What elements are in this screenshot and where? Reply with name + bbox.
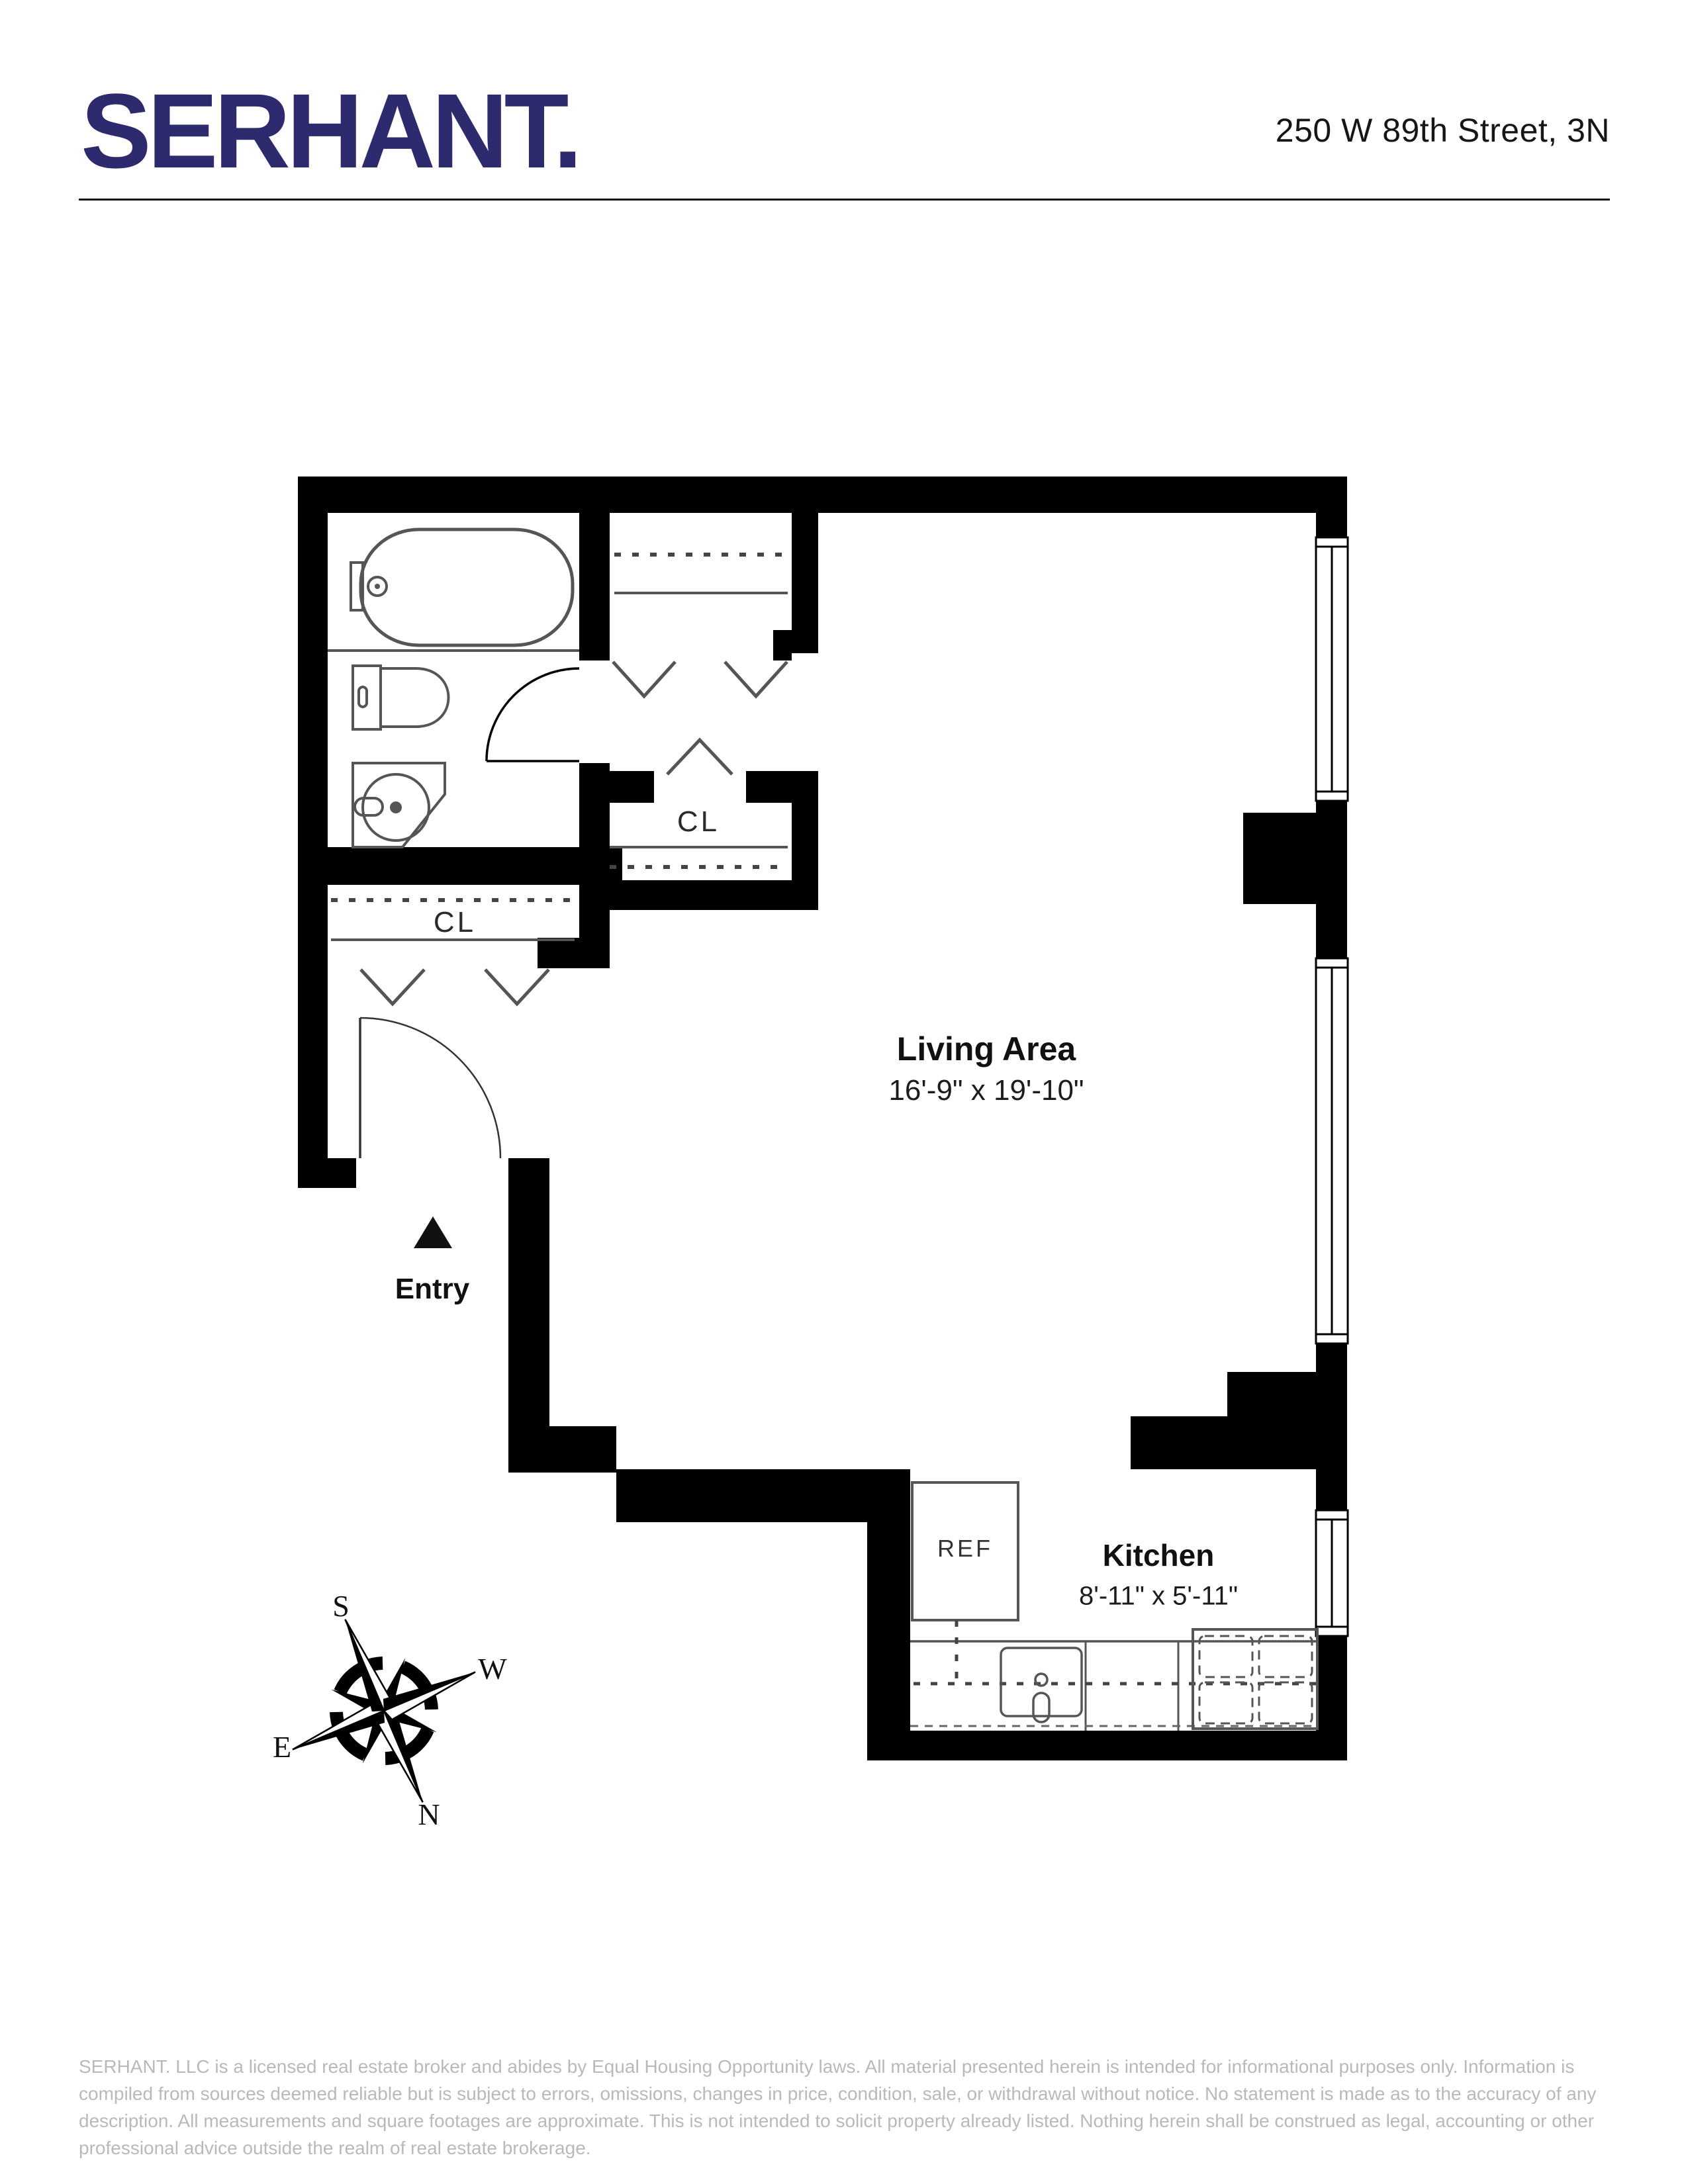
compass-rose: S W E N (265, 1582, 516, 1840)
kitchen-sink-faucet (1033, 1693, 1049, 1722)
toilet (353, 666, 449, 729)
wall-bath-bottom (326, 847, 622, 885)
wall-top (298, 477, 1347, 513)
compass-south-label: S (332, 1589, 350, 1623)
wall-hall-closet-stub-right (746, 771, 792, 803)
wall-hall-closet-stub-left (604, 771, 654, 803)
wall-step (508, 1426, 616, 1473)
living-area-dimensions: 16'-9" x 19'-10" (888, 1074, 1084, 1107)
entry-label: Entry (395, 1273, 469, 1306)
legal-disclaimer: SERHANT. LLC is a licensed real estate b… (79, 2054, 1615, 2162)
bathroom-group (328, 529, 579, 847)
refrigerator-label: REF (937, 1535, 993, 1563)
compass-west-label: W (478, 1652, 507, 1686)
header-divider (79, 199, 1610, 201)
wall-right-top (1316, 477, 1347, 537)
serhant-logo: SERHANT. (81, 78, 579, 184)
wall-kitchen-step-upper (1227, 1372, 1320, 1416)
closet-chevron-icon (485, 970, 549, 1004)
bathroom-sink (353, 763, 445, 847)
bathtub (361, 529, 573, 645)
kitchen-title: Kitchen (1103, 1537, 1215, 1573)
stove-burner (1259, 1682, 1312, 1723)
wall-right-pier (1316, 801, 1347, 958)
entry-door-swing (360, 1018, 500, 1158)
wall-foyer-right (508, 1158, 549, 1426)
wall-right-mid (1316, 1343, 1347, 1510)
bathroom-door (487, 668, 579, 761)
property-address: 250 W 89th Street, 3N (1276, 111, 1610, 150)
entry-arrow-icon (414, 1216, 452, 1248)
bathtub-drain (375, 584, 380, 589)
wall-entry-left-stub (326, 1158, 356, 1188)
closet-chevron-icon (667, 740, 732, 774)
wall-hall-right-upper (792, 480, 818, 653)
stove-burner (1199, 1682, 1252, 1723)
stove (1193, 1629, 1317, 1729)
wall-living-bottom (616, 1469, 910, 1522)
compass-north-label: N (418, 1797, 440, 1831)
wall-kitchen-left (867, 1521, 910, 1733)
wall-foyer-closet-stub (538, 938, 579, 968)
closets-group (331, 555, 788, 1004)
window-kitchen (1316, 1510, 1348, 1636)
kitchen-sink-drain (1035, 1674, 1047, 1686)
toilet-bowl (381, 668, 449, 727)
toilet-button (359, 687, 367, 707)
compass-major-points (265, 1582, 514, 1840)
window-living-lower (1316, 958, 1348, 1343)
closet-chevron-icon (613, 662, 675, 696)
wall-pier-bump (1243, 813, 1317, 904)
window-living-upper (1316, 537, 1348, 801)
wall-left (298, 477, 328, 1188)
foyer-closet-label: CL (434, 906, 476, 939)
hall-closet-label: CL (677, 805, 720, 839)
kitchen-dimensions: 8'-11" x 5'-11" (1079, 1582, 1238, 1612)
closet-chevron-icon (361, 970, 424, 1004)
wall-kitchen-top (1131, 1416, 1320, 1469)
sink-faucet (355, 798, 383, 815)
stove-outline (1193, 1629, 1317, 1729)
wall-bath-right-upper (579, 513, 610, 660)
wall-right-bottom (1316, 1636, 1347, 1760)
sink-drain (390, 801, 402, 813)
compass-star (265, 1582, 514, 1840)
closet-chevron-icon (725, 662, 787, 696)
living-area-title: Living Area (897, 1030, 1076, 1068)
wall-top-closet-stub (773, 630, 792, 660)
entry-door (360, 1018, 500, 1158)
wall-hall-closet-bottom (604, 880, 818, 910)
wall-kitchen-bottom (867, 1731, 1347, 1760)
compass-east-label: E (273, 1730, 291, 1764)
floor-plan-page: SERHANT. 250 W 89th Street, 3N (0, 0, 1688, 2184)
